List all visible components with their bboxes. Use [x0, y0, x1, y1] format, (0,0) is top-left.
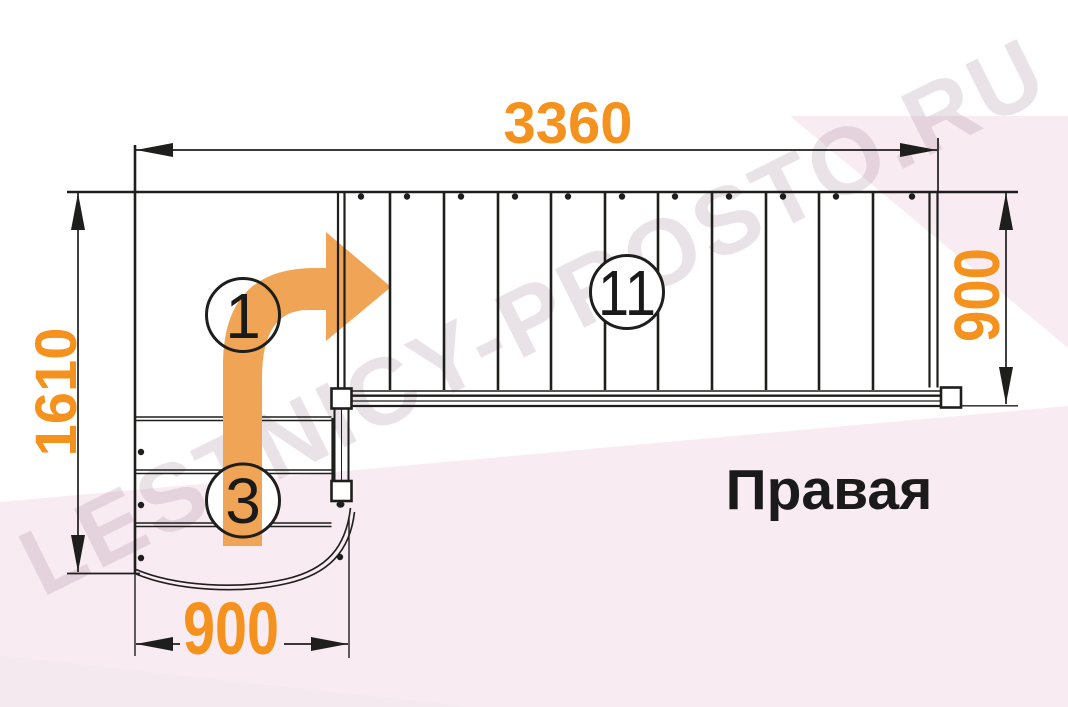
baluster-dot [619, 193, 625, 199]
newel-square-right [941, 388, 961, 408]
step-marker-3-label: 3 [225, 465, 261, 537]
baluster-dot [358, 193, 364, 199]
orientation-label: Правая [726, 458, 933, 522]
dim-left-value: 1610 [24, 327, 89, 456]
baluster-dot [780, 193, 786, 199]
newel-square-top [332, 389, 352, 409]
dim-bottom-value: 900 [183, 587, 279, 670]
baluster-dot [726, 193, 732, 199]
baluster-dot [672, 193, 678, 199]
baluster-dot [404, 193, 410, 199]
stair-plan-page: LESTNICY-PROSTO.RU [0, 0, 1068, 707]
newel-square-bottom [332, 481, 352, 501]
baluster-dot [565, 193, 571, 199]
stair-plan-diagram: LESTNICY-PROSTO.RU [0, 0, 1068, 707]
dim-right-value: 900 [941, 248, 1013, 342]
baluster-dot [512, 193, 518, 199]
baluster-dot [138, 502, 144, 508]
newel-foot-mark [337, 501, 345, 507]
baluster-dot [458, 193, 464, 199]
baluster-dot [909, 193, 915, 199]
dim-top-value: 3360 [503, 91, 632, 156]
step-marker-1-label: 1 [225, 280, 261, 352]
step-marker-11-label: 11 [598, 257, 656, 329]
baluster-dot [337, 554, 343, 560]
baluster-dot [138, 449, 144, 455]
baluster-dot [138, 555, 144, 561]
baluster-dot [833, 193, 839, 199]
